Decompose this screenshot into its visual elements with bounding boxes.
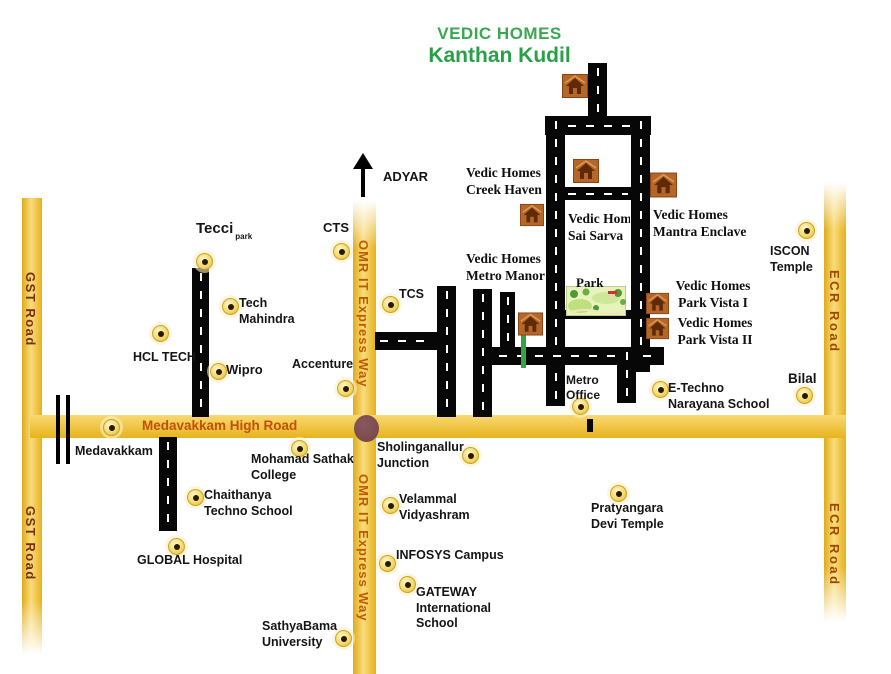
label-line: Sholinganallur (377, 440, 464, 456)
marker-sathyabama (335, 630, 352, 647)
marker-sholinganallur (462, 447, 479, 464)
marker-velammal (382, 497, 399, 514)
house-icon-park-vista-1 (646, 292, 669, 320)
label-mantra-enclave: Vedic Homes Mantra Enclave (653, 207, 746, 241)
title-line-1: VEDIC HOMES (412, 24, 587, 44)
road-segment-c (500, 292, 515, 350)
label-line: Vedic Homes (672, 315, 758, 332)
house-icon-park-vista-2 (646, 317, 669, 345)
label-line: Vidyashram (399, 508, 470, 524)
label-line: Metro Manor (466, 268, 545, 285)
label-tecci-sub: park (235, 232, 252, 241)
marker-tcs (382, 296, 399, 313)
up-arrow-icon (351, 153, 375, 203)
label-ecr-road-upper: ECR Road (827, 270, 842, 354)
map-title: VEDIC HOMES Kanthan Kudil (412, 24, 587, 68)
label-line: Velammal (399, 492, 470, 508)
label-adyar: ADYAR (383, 169, 428, 185)
label-line: Narayana School (668, 397, 769, 413)
label-line: Creek Haven (466, 182, 542, 199)
house-icon-sai-sarva (573, 158, 599, 189)
label-line: Junction (377, 456, 464, 472)
label-omr-lower: OMR IT Express Way (356, 474, 371, 622)
label-creek-haven: Vedic Homes Creek Haven (466, 165, 542, 199)
label-line: Sai Sarva (568, 228, 630, 245)
label-tcs: TCS (399, 287, 424, 303)
house-icon-metro-manor (518, 312, 543, 341)
label-line: University (262, 635, 337, 651)
marker-tech-mahindra (222, 298, 239, 315)
house-icon-creek-haven (520, 201, 544, 234)
label-line: Mahindra (239, 312, 295, 328)
marker-bilal (796, 387, 813, 404)
label-line: SathyaBama (262, 619, 337, 635)
label-ecr-road-lower: ECR Road (827, 503, 842, 587)
label-line: Pratyangara (591, 501, 664, 517)
marker-tecci (196, 253, 213, 270)
label-line: Techno School (204, 504, 293, 520)
road-segment-tecci (192, 268, 209, 417)
marker-pratyangara (610, 485, 627, 502)
marker-hcl-tech (152, 325, 169, 342)
label-global-hospital: GLOBAL Hospital (137, 553, 242, 569)
label-tech-mahindra: Tech Mahindra (239, 296, 295, 327)
label-line: Vedic Homes (653, 207, 746, 224)
label-line: Vedic Homes (670, 278, 756, 295)
label-line: College (251, 468, 354, 484)
label-metro-office: Metro Office (566, 373, 600, 403)
road-segment-omr-connector (375, 332, 439, 350)
label-line: E-Techno (668, 381, 769, 397)
label-medavakkam: Medavakkam (75, 444, 153, 460)
house-icon-top (562, 74, 588, 103)
label-medavakkam-high-road: Medavakkam High Road (142, 418, 297, 435)
label-line: Park Vista II (672, 332, 758, 349)
label-line: Tech (239, 296, 295, 312)
junction-circle (354, 415, 379, 442)
house-icon-mantra-enclave (650, 172, 677, 203)
label-gst-road-upper: GST Road (23, 272, 38, 347)
label-line: ISCON (770, 244, 813, 260)
road-segment-right-stub (617, 347, 636, 403)
label-line: Park Vista I (670, 295, 756, 312)
label-velammal: Velammal Vidyashram (399, 492, 470, 523)
label-line: Devi Temple (591, 517, 664, 533)
label-line: Vedic Homes (568, 211, 630, 228)
label-tecci: Teccipark (196, 220, 252, 242)
label-line: Mantra Enclave (653, 224, 746, 241)
location-map: GST Road GST Road OMR IT Express Way OMR… (0, 0, 891, 674)
label-line: International (416, 601, 491, 617)
label-sai-sarva: Vedic Homes Sai Sarva (568, 211, 630, 245)
label-accenture: Accenture (292, 357, 353, 373)
road-segment-b (473, 289, 492, 417)
label-line: Mohamad Sathak (251, 452, 354, 468)
label-iscon-temple: ISCON Temple (770, 244, 813, 275)
label-e-techno: E-Techno Narayana School (668, 381, 769, 412)
label-wipro: Wipro (226, 362, 263, 378)
marker-infosys (379, 555, 396, 572)
label-line: Chaithanya (204, 488, 293, 504)
label-line: GATEWAY (416, 585, 491, 601)
road-segment-top-stub (588, 63, 607, 119)
marker-chaithanya (187, 489, 204, 506)
label-sholinganallur: Sholinganallur Junction (377, 440, 464, 471)
label-gateway: GATEWAY International School (416, 585, 491, 632)
label-infosys: INFOSYS Campus (396, 548, 504, 564)
label-mohamad-sathak: Mohamad Sathak College (251, 452, 354, 483)
label-park-vista-2: Vedic Homes Park Vista II (672, 315, 758, 349)
label-bilal: Bilal (788, 371, 817, 388)
road-segment-a (437, 286, 456, 417)
marker-cts (333, 243, 350, 260)
label-hcl-tech: HCL TECH (133, 350, 196, 366)
marker-wipro (210, 363, 227, 380)
label-cts: CTS (323, 220, 349, 236)
label-line: School (416, 616, 491, 632)
label-gst-road-lower: GST Road (23, 506, 38, 581)
label-sathyabama: SathyaBama University (262, 619, 337, 650)
road-segment-lower-left (159, 437, 177, 531)
marker-e-techno (652, 381, 669, 398)
label-line: Temple (770, 260, 813, 276)
label-line: Office (566, 388, 600, 403)
label-park-vista-1: Vedic Homes Park Vista I (670, 278, 756, 312)
label-line: Vedic Homes (466, 165, 542, 182)
railway-crossing (66, 395, 70, 464)
label-metro-manor: Vedic Homes Metro Manor (466, 251, 545, 285)
title-line-2: Kanthan Kudil (412, 44, 587, 68)
label-pratyangara: Pratyangara Devi Temple (591, 501, 664, 532)
railway-crossing (56, 395, 60, 464)
label-park: Park (576, 275, 603, 291)
label-line: Vedic Homes (466, 251, 545, 268)
label-omr-upper: OMR IT Express Way (356, 240, 371, 388)
label-line: Metro (566, 373, 600, 388)
marker-iscon-temple (798, 222, 815, 239)
marker-gateway (399, 576, 416, 593)
marker-accenture (337, 380, 354, 397)
label-chaithanya: Chaithanya Techno School (204, 488, 293, 519)
road-segment-tick (587, 419, 593, 432)
marker-medavakkam (103, 419, 120, 436)
